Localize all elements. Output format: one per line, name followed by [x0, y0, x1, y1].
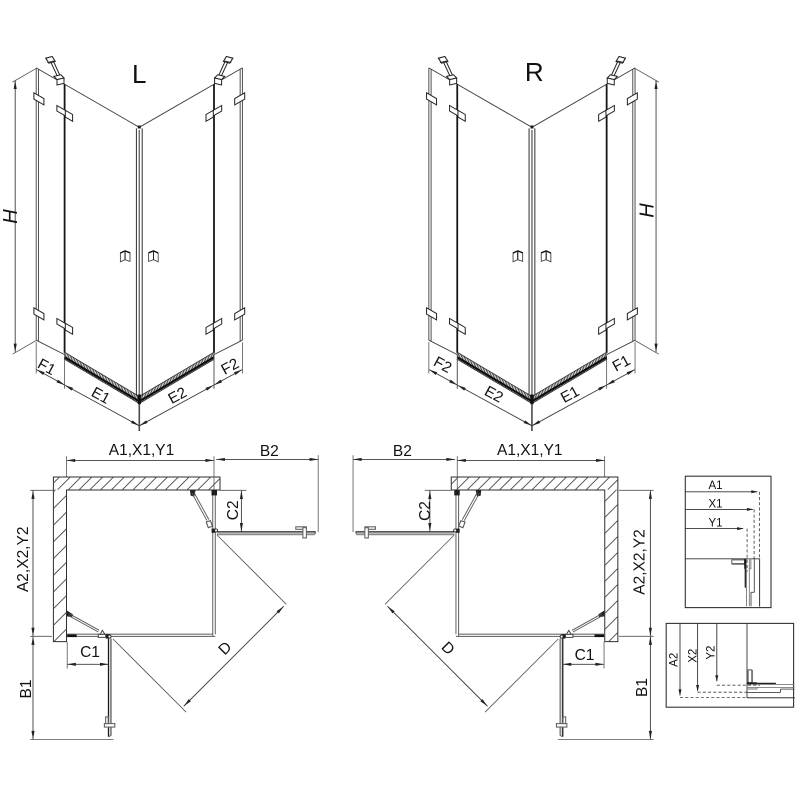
- svg-text:Y1: Y1: [708, 518, 722, 530]
- svg-text:B1: B1: [18, 680, 35, 699]
- svg-text:B1: B1: [634, 678, 651, 697]
- svg-text:H: H: [637, 203, 659, 218]
- svg-text:E1: E1: [88, 384, 112, 408]
- svg-text:C1: C1: [575, 647, 595, 664]
- svg-text:A1,X1,Y1: A1,X1,Y1: [109, 442, 175, 459]
- svg-text:A1: A1: [708, 480, 722, 492]
- svg-text:F2: F2: [218, 355, 242, 378]
- svg-text:C1: C1: [80, 644, 100, 661]
- svg-text:X1: X1: [708, 498, 722, 510]
- svg-text:Y2: Y2: [705, 646, 717, 660]
- svg-text:H: H: [0, 209, 22, 224]
- svg-text:R: R: [525, 57, 544, 87]
- svg-text:D: D: [215, 639, 235, 659]
- svg-text:A2: A2: [669, 653, 681, 667]
- svg-text:B2: B2: [260, 443, 279, 460]
- svg-text:E2: E2: [165, 384, 189, 408]
- svg-text:C2: C2: [225, 500, 242, 520]
- svg-text:F1: F1: [35, 356, 59, 379]
- svg-text:A2,X2,Y2: A2,X2,Y2: [15, 527, 32, 593]
- svg-text:B2: B2: [393, 443, 412, 460]
- svg-text:C2: C2: [417, 501, 434, 521]
- svg-text:A1,X1,Y1: A1,X1,Y1: [497, 442, 563, 459]
- svg-text:E1: E1: [558, 383, 582, 407]
- svg-text:D: D: [438, 639, 458, 659]
- svg-text:A2,X2,Y2: A2,X2,Y2: [632, 529, 649, 595]
- svg-text:X2: X2: [687, 649, 699, 663]
- svg-text:L: L: [132, 59, 146, 89]
